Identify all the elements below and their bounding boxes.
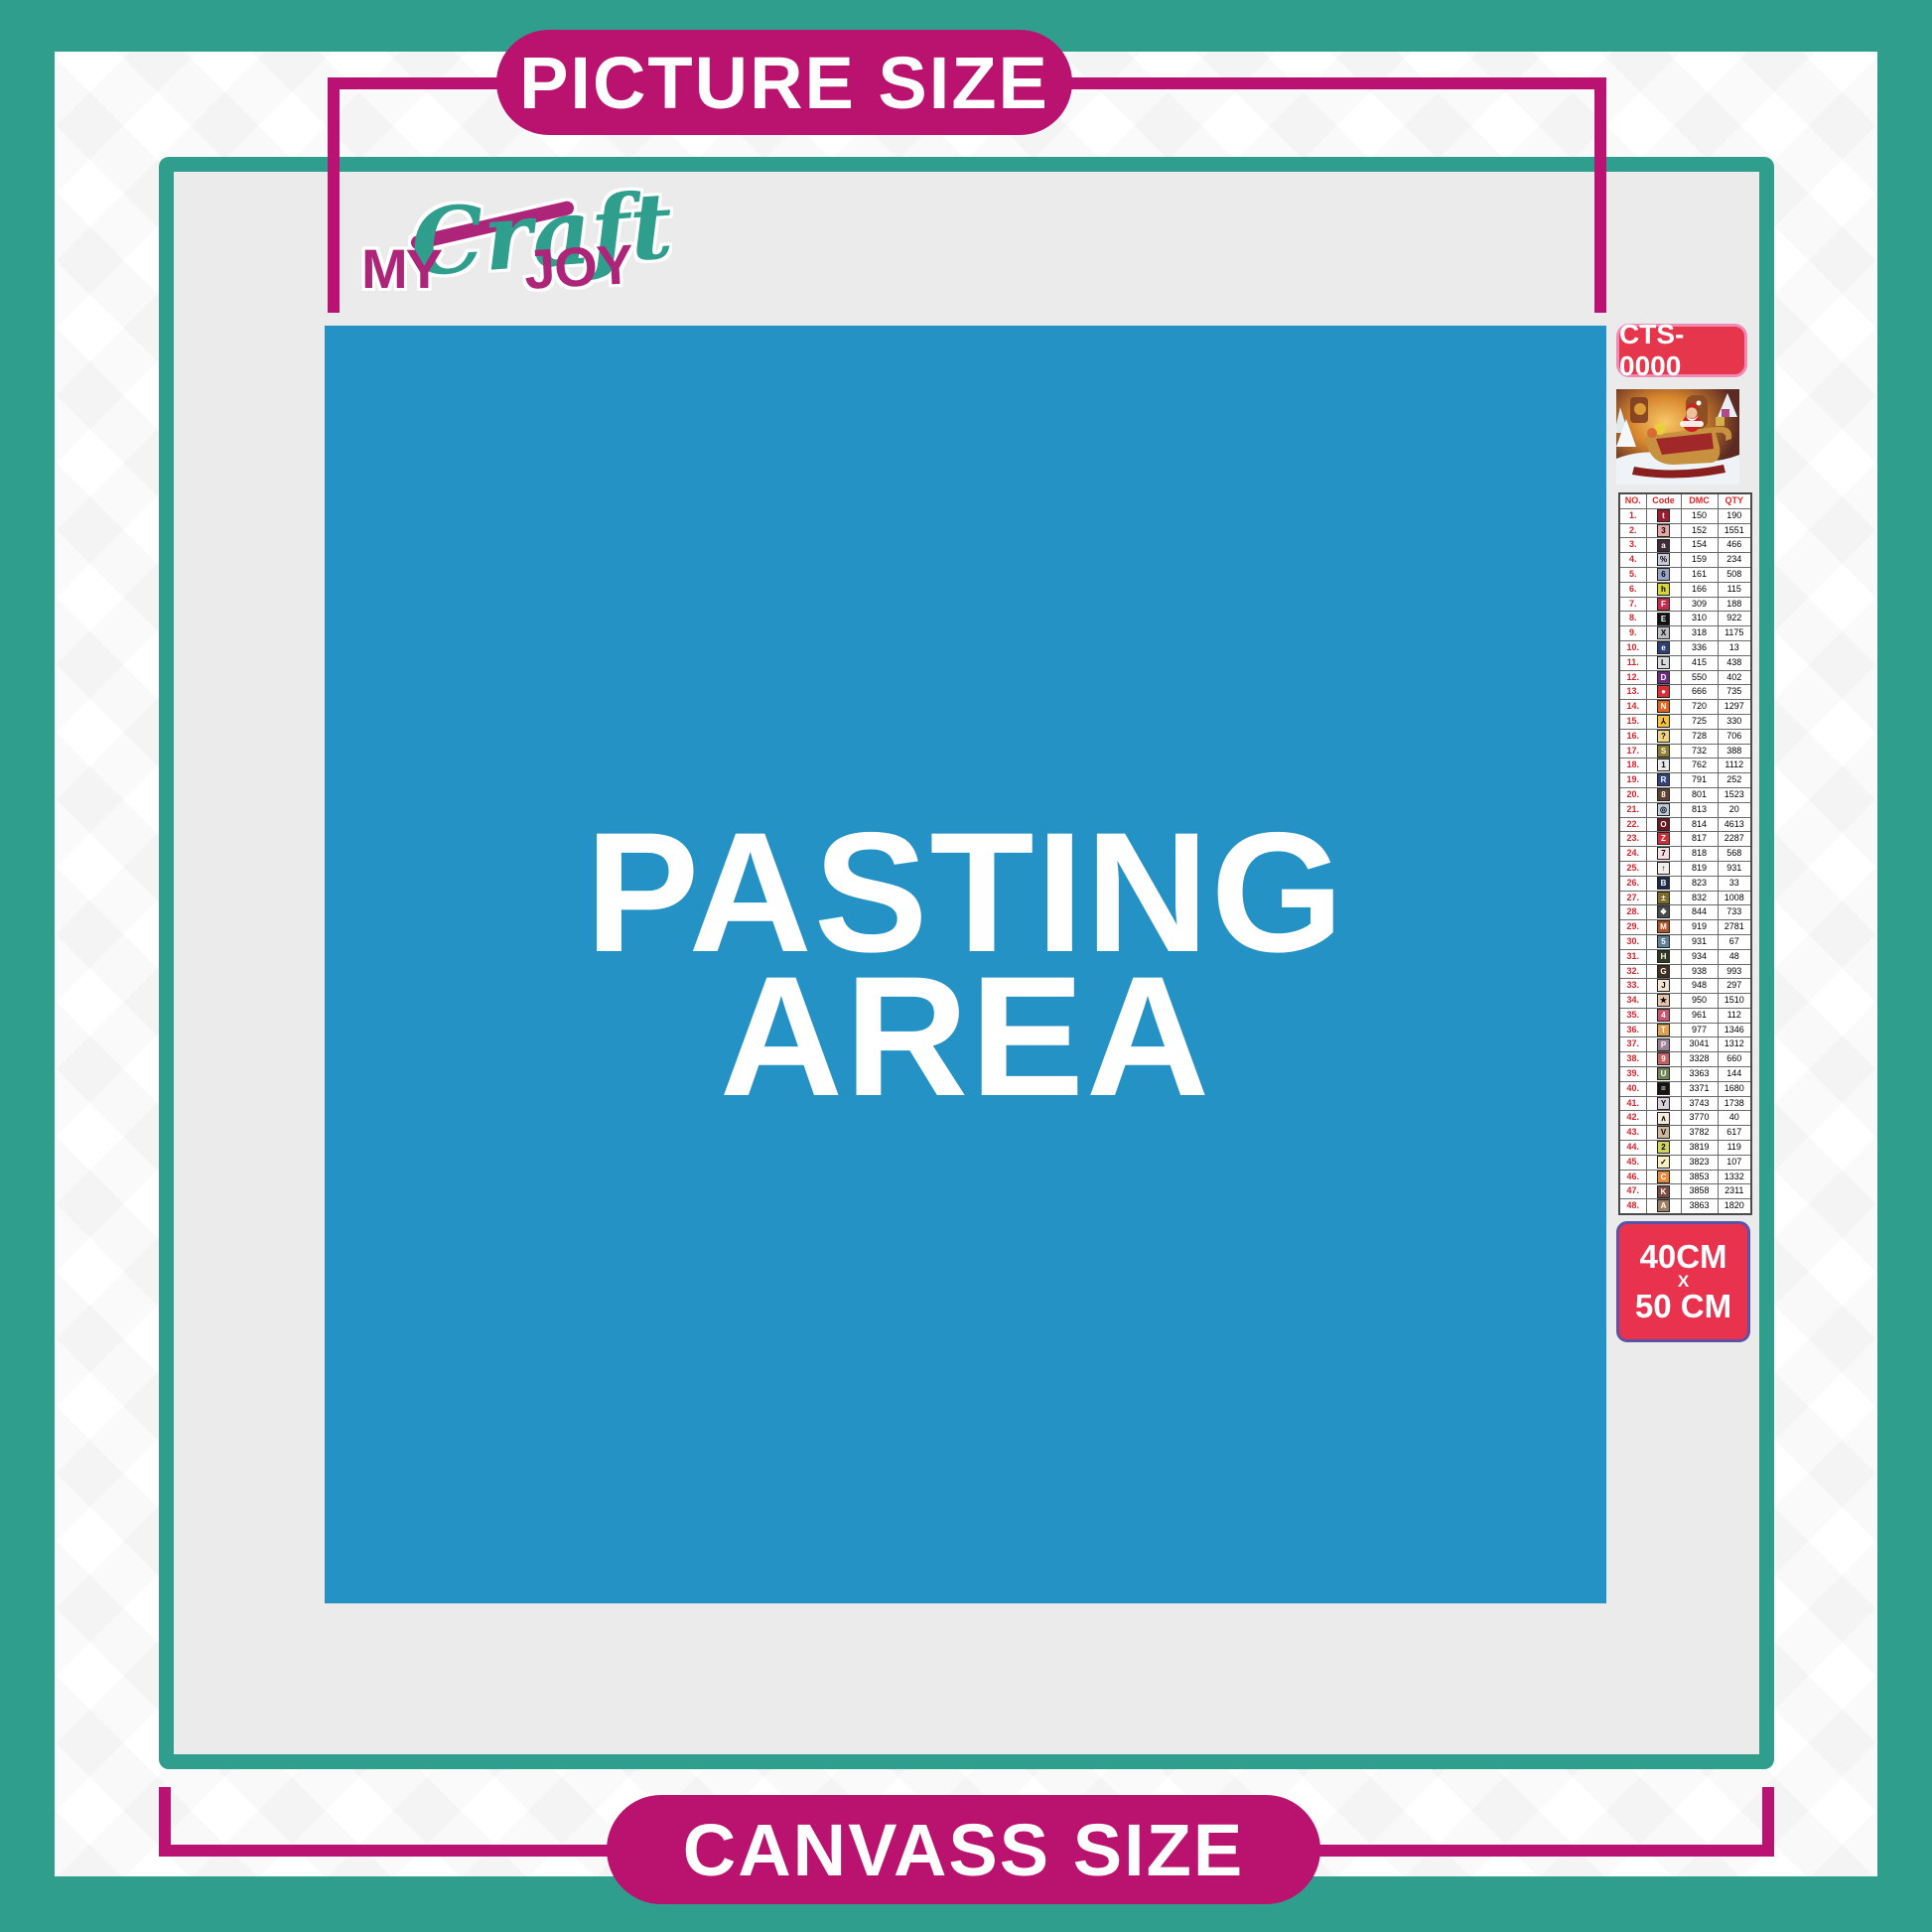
legend-dmc: 813: [1681, 802, 1718, 817]
legend-row: 44.23819119: [1619, 1141, 1751, 1156]
legend-no: 28.: [1619, 905, 1646, 920]
legend-qty: 388: [1718, 744, 1751, 759]
legend-dmc: 3853: [1681, 1170, 1718, 1184]
symbol-swatch: %: [1657, 553, 1670, 566]
legend-symbol-cell: Z: [1646, 832, 1681, 847]
legend-dmc: 948: [1681, 979, 1718, 994]
legend-dmc: 310: [1681, 612, 1718, 626]
symbol-swatch: E: [1657, 613, 1670, 625]
legend-dmc: 3770: [1681, 1111, 1718, 1126]
legend-qty: 115: [1718, 582, 1751, 597]
symbol-swatch: T: [1657, 1024, 1670, 1036]
legend-dmc: 814: [1681, 817, 1718, 832]
legend-qty: 48: [1718, 949, 1751, 964]
size-height: 50 CM: [1635, 1290, 1731, 1323]
legend-no: 20.: [1619, 787, 1646, 802]
legend-qty: 1332: [1718, 1170, 1751, 1184]
symbol-swatch: M: [1657, 920, 1670, 933]
legend-dmc: 844: [1681, 905, 1718, 920]
legend-qty: 568: [1718, 847, 1751, 862]
legend-no: 6.: [1619, 582, 1646, 597]
legend-row: 20.88011523: [1619, 787, 1751, 802]
legend-no: 48.: [1619, 1199, 1646, 1214]
legend-qty: 112: [1718, 1008, 1751, 1023]
legend-no: 22.: [1619, 817, 1646, 832]
symbol-swatch: ❖: [1657, 905, 1670, 918]
legend-qty: 1346: [1718, 1023, 1751, 1037]
legend-no: 8.: [1619, 612, 1646, 626]
legend-no: 30.: [1619, 934, 1646, 949]
legend-row: 16.?728706: [1619, 729, 1751, 744]
legend-row: 41.Y37431738: [1619, 1096, 1751, 1111]
legend-qty: 1680: [1718, 1081, 1751, 1096]
symbol-swatch: D: [1657, 671, 1670, 684]
legend-symbol-cell: E: [1646, 612, 1681, 626]
legend-row: 27.±8321008: [1619, 891, 1751, 905]
legend-dmc: 666: [1681, 685, 1718, 700]
legend-symbol-cell: ∧: [1646, 1111, 1681, 1126]
legend-dmc: 823: [1681, 876, 1718, 891]
symbol-swatch: A: [1657, 1199, 1670, 1212]
legend-qty: 993: [1718, 964, 1751, 979]
legend-no: 42.: [1619, 1111, 1646, 1126]
symbol-swatch: O: [1657, 818, 1670, 831]
symbol-swatch: U: [1657, 1067, 1670, 1080]
legend-dmc: 728: [1681, 729, 1718, 744]
canvass-size-banner: CANVASS SIZE: [607, 1795, 1320, 1904]
symbol-swatch: ↑: [1657, 862, 1670, 875]
symbol-swatch: ●: [1657, 685, 1670, 698]
legend-no: 35.: [1619, 1008, 1646, 1023]
legend-qty: 1551: [1718, 523, 1751, 538]
legend-dmc: 3371: [1681, 1081, 1718, 1096]
legend-no: 1.: [1619, 508, 1646, 523]
legend-qty: 922: [1718, 612, 1751, 626]
symbol-swatch: R: [1657, 773, 1670, 786]
legend-dmc: 3819: [1681, 1141, 1718, 1156]
legend-dmc: 801: [1681, 787, 1718, 802]
symbol-swatch: e: [1657, 641, 1670, 654]
legend-no: 12.: [1619, 670, 1646, 685]
santa-sleigh-thumbnail: [1616, 389, 1739, 484]
legend-symbol-cell: D: [1646, 670, 1681, 685]
legend-row: 14.N7201297: [1619, 700, 1751, 715]
legend-dmc: 3743: [1681, 1096, 1718, 1111]
legend-dmc: 817: [1681, 832, 1718, 847]
symbol-swatch: 1: [1657, 759, 1670, 771]
symbol-swatch: ◎: [1657, 803, 1670, 816]
legend-row: 40.=33711680: [1619, 1081, 1751, 1096]
legend-no: 32.: [1619, 964, 1646, 979]
legend-row: 32.G938993: [1619, 964, 1751, 979]
legend-symbol-cell: ⅄: [1646, 714, 1681, 729]
symbol-swatch: 3: [1657, 524, 1670, 537]
symbol-swatch: P: [1657, 1038, 1670, 1051]
legend-qty: 188: [1718, 597, 1751, 612]
legend-dmc: 977: [1681, 1023, 1718, 1037]
symbol-swatch: h: [1657, 583, 1670, 596]
legend-qty: 119: [1718, 1141, 1751, 1156]
legend-row: 29.M9192781: [1619, 920, 1751, 935]
legend-row: 45.✓3823107: [1619, 1155, 1751, 1170]
legend-row: 28.❖844733: [1619, 905, 1751, 920]
symbol-swatch: Z: [1657, 832, 1670, 845]
pasting-area-line2: AREA: [720, 965, 1211, 1108]
legend-no: 13.: [1619, 685, 1646, 700]
legend-row: 15.⅄725330: [1619, 714, 1751, 729]
legend-qty: 1112: [1718, 759, 1751, 773]
legend-row: 34.★9501510: [1619, 994, 1751, 1009]
legend-row: 24.7818568: [1619, 847, 1751, 862]
legend-no: 19.: [1619, 773, 1646, 788]
legend-qty: 20: [1718, 802, 1751, 817]
picture-size-label: PICTURE SIZE: [519, 41, 1049, 125]
legend-symbol-cell: e: [1646, 640, 1681, 655]
legend-row: 30.593167: [1619, 934, 1751, 949]
legend-symbol-cell: =: [1646, 1081, 1681, 1096]
legend-header-dmc: DMC: [1681, 493, 1718, 508]
size-badge: 40CM X 50 CM: [1616, 1221, 1750, 1342]
legend-row: 1.t150190: [1619, 508, 1751, 523]
legend-dmc: 3782: [1681, 1126, 1718, 1141]
legend-symbol-cell: ↑: [1646, 861, 1681, 876]
legend-no: 16.: [1619, 729, 1646, 744]
size-width: 40CM: [1639, 1240, 1726, 1274]
legend-no: 10.: [1619, 640, 1646, 655]
legend-row: 18.17621112: [1619, 759, 1751, 773]
legend-qty: 2781: [1718, 920, 1751, 935]
legend-no: 23.: [1619, 832, 1646, 847]
legend-symbol-cell: S: [1646, 744, 1681, 759]
legend-symbol-cell: U: [1646, 1067, 1681, 1082]
symbol-swatch: 7: [1657, 847, 1670, 860]
symbol-swatch: B: [1657, 877, 1670, 890]
legend-row: 21.◎81320: [1619, 802, 1751, 817]
legend-row: 17.S732388: [1619, 744, 1751, 759]
symbol-swatch: =: [1657, 1082, 1670, 1095]
legend-symbol-cell: a: [1646, 538, 1681, 553]
legend-qty: 402: [1718, 670, 1751, 685]
legend-symbol-cell: B: [1646, 876, 1681, 891]
legend-row: 6.h166115: [1619, 582, 1751, 597]
legend-no: 3.: [1619, 538, 1646, 553]
legend-row: 8.E310922: [1619, 612, 1751, 626]
legend-qty: 2287: [1718, 832, 1751, 847]
legend-symbol-cell: 8: [1646, 787, 1681, 802]
legend-qty: 735: [1718, 685, 1751, 700]
legend-row: 11.L415438: [1619, 655, 1751, 670]
legend-header-qty: QTY: [1718, 493, 1751, 508]
legend-row: 36.T9771346: [1619, 1023, 1751, 1037]
legend-header-no: NO.: [1619, 493, 1646, 508]
symbol-swatch: G: [1657, 965, 1670, 978]
legend-dmc: 309: [1681, 597, 1718, 612]
legend-qty: 144: [1718, 1067, 1751, 1082]
legend-no: 36.: [1619, 1023, 1646, 1037]
legend-no: 15.: [1619, 714, 1646, 729]
legend-no: 43.: [1619, 1126, 1646, 1141]
legend-dmc: 415: [1681, 655, 1718, 670]
legend-symbol-cell: 2: [1646, 1141, 1681, 1156]
legend-qty: 660: [1718, 1052, 1751, 1067]
legend-dmc: 154: [1681, 538, 1718, 553]
legend-symbol-cell: N: [1646, 700, 1681, 715]
legend-no: 7.: [1619, 597, 1646, 612]
legend-no: 2.: [1619, 523, 1646, 538]
legend-header-code: Code: [1646, 493, 1681, 508]
legend-qty: 234: [1718, 553, 1751, 568]
legend-symbol-cell: J: [1646, 979, 1681, 994]
legend-dmc: 919: [1681, 920, 1718, 935]
legend-qty: 67: [1718, 934, 1751, 949]
legend-qty: 1312: [1718, 1037, 1751, 1052]
legend-symbol-cell: F: [1646, 597, 1681, 612]
legend-dmc: 762: [1681, 759, 1718, 773]
symbol-swatch: 6: [1657, 568, 1670, 581]
legend-dmc: 791: [1681, 773, 1718, 788]
sku-badge: CTS-0000: [1616, 324, 1747, 377]
legend-no: 11.: [1619, 655, 1646, 670]
legend-no: 44.: [1619, 1141, 1646, 1156]
legend-dmc: 550: [1681, 670, 1718, 685]
canvass-size-label: CANVASS SIZE: [683, 1808, 1244, 1892]
legend-no: 26.: [1619, 876, 1646, 891]
symbol-swatch: 2: [1657, 1141, 1670, 1154]
legend-row: 7.F309188: [1619, 597, 1751, 612]
picture-size-banner: PICTURE SIZE: [496, 30, 1072, 135]
legend-symbol-cell: ●: [1646, 685, 1681, 700]
legend-qty: 1523: [1718, 787, 1751, 802]
pasting-area: PASTING AREA: [325, 326, 1606, 1603]
legend-row: 31.H93448: [1619, 949, 1751, 964]
legend-dmc: 819: [1681, 861, 1718, 876]
legend-no: 38.: [1619, 1052, 1646, 1067]
symbol-swatch: 5: [1657, 935, 1670, 948]
legend-dmc: 732: [1681, 744, 1718, 759]
legend-dmc: 950: [1681, 994, 1718, 1009]
legend-no: 37.: [1619, 1037, 1646, 1052]
legend-no: 46.: [1619, 1170, 1646, 1184]
symbol-swatch: ±: [1657, 892, 1670, 904]
brand-logo: Craft MY JOY: [347, 179, 616, 310]
symbol-swatch: H: [1657, 950, 1670, 963]
legend-dmc: 961: [1681, 1008, 1718, 1023]
legend-no: 40.: [1619, 1081, 1646, 1096]
legend-row: 10.e33613: [1619, 640, 1751, 655]
symbol-swatch: X: [1657, 626, 1670, 639]
legend-qty: 13: [1718, 640, 1751, 655]
legend-symbol-cell: G: [1646, 964, 1681, 979]
legend-row: 48.A38631820: [1619, 1199, 1751, 1214]
legend-no: 45.: [1619, 1155, 1646, 1170]
legend-no: 4.: [1619, 553, 1646, 568]
legend-dmc: 3823: [1681, 1155, 1718, 1170]
legend-no: 47.: [1619, 1184, 1646, 1199]
legend-qty: 252: [1718, 773, 1751, 788]
legend-dmc: 150: [1681, 508, 1718, 523]
legend-qty: 1738: [1718, 1096, 1751, 1111]
legend-no: 34.: [1619, 994, 1646, 1009]
legend-dmc: 832: [1681, 891, 1718, 905]
legend-qty: 4613: [1718, 817, 1751, 832]
legend-symbol-cell: 7: [1646, 847, 1681, 862]
legend-symbol-cell: 1: [1646, 759, 1681, 773]
legend-symbol-cell: M: [1646, 920, 1681, 935]
legend-no: 33.: [1619, 979, 1646, 994]
legend-row: 9.X3181175: [1619, 626, 1751, 641]
legend-symbol-cell: L: [1646, 655, 1681, 670]
legend-dmc: 3328: [1681, 1052, 1718, 1067]
legend-qty: 297: [1718, 979, 1751, 994]
legend-dmc: 161: [1681, 567, 1718, 582]
legend-dmc: 159: [1681, 553, 1718, 568]
legend-symbol-cell: h: [1646, 582, 1681, 597]
legend-row: 26.B82333: [1619, 876, 1751, 891]
legend-row: 47.K38582311: [1619, 1184, 1751, 1199]
legend-symbol-cell: T: [1646, 1023, 1681, 1037]
symbol-swatch: a: [1657, 539, 1670, 552]
legend-symbol-cell: R: [1646, 773, 1681, 788]
symbol-swatch: t: [1657, 509, 1670, 522]
legend-no: 39.: [1619, 1067, 1646, 1082]
symbol-swatch: ∧: [1657, 1112, 1670, 1125]
legend-symbol-cell: P: [1646, 1037, 1681, 1052]
legend-symbol-cell: X: [1646, 626, 1681, 641]
legend-qty: 107: [1718, 1155, 1751, 1170]
legend-dmc: 931: [1681, 934, 1718, 949]
legend-row: 3.a154466: [1619, 538, 1751, 553]
legend-symbol-cell: K: [1646, 1184, 1681, 1199]
symbol-swatch: F: [1657, 598, 1670, 611]
legend-row: 37.P30411312: [1619, 1037, 1751, 1052]
symbol-swatch: C: [1657, 1171, 1670, 1183]
legend-row: 39.U3363144: [1619, 1067, 1751, 1082]
legend-dmc: 934: [1681, 949, 1718, 964]
symbol-swatch: N: [1657, 700, 1670, 713]
symbol-swatch: ✓: [1657, 1156, 1670, 1169]
legend-no: 5.: [1619, 567, 1646, 582]
legend-no: 9.: [1619, 626, 1646, 641]
legend-no: 41.: [1619, 1096, 1646, 1111]
legend-symbol-cell: 4: [1646, 1008, 1681, 1023]
legend-row: 46.C38531332: [1619, 1170, 1751, 1184]
legend-qty: 1820: [1718, 1199, 1751, 1214]
legend-symbol-cell: A: [1646, 1199, 1681, 1214]
santa-sleigh-illustration: [1616, 389, 1739, 484]
legend-symbol-cell: 3: [1646, 523, 1681, 538]
legend-dmc: 3363: [1681, 1067, 1718, 1082]
legend-dmc: 720: [1681, 700, 1718, 715]
symbol-swatch: L: [1657, 656, 1670, 669]
legend-dmc: 152: [1681, 523, 1718, 538]
legend-qty: 466: [1718, 538, 1751, 553]
legend-dmc: 166: [1681, 582, 1718, 597]
legend-no: 14.: [1619, 700, 1646, 715]
legend-symbol-cell: ✓: [1646, 1155, 1681, 1170]
legend-symbol-cell: O: [1646, 817, 1681, 832]
legend-symbol-cell: 9: [1646, 1052, 1681, 1067]
legend-row: 35.4961112: [1619, 1008, 1751, 1023]
legend-dmc: 725: [1681, 714, 1718, 729]
legend-symbol-cell: ❖: [1646, 905, 1681, 920]
legend-row: 12.D550402: [1619, 670, 1751, 685]
legend-table-body: 1.t1501902.315215513.a1544664.%1592345.6…: [1619, 508, 1751, 1214]
legend-qty: 438: [1718, 655, 1751, 670]
legend-no: 24.: [1619, 847, 1646, 862]
legend-symbol-cell: C: [1646, 1170, 1681, 1184]
symbol-swatch: 8: [1657, 788, 1670, 801]
legend-qty: 1175: [1718, 626, 1751, 641]
symbol-swatch: K: [1657, 1185, 1670, 1198]
legend-dmc: 3858: [1681, 1184, 1718, 1199]
legend-row: 33.J948297: [1619, 979, 1751, 994]
legend-no: 17.: [1619, 744, 1646, 759]
legend-symbol-cell: Y: [1646, 1096, 1681, 1111]
legend-row: 2.31521551: [1619, 523, 1751, 538]
legend-dmc: 938: [1681, 964, 1718, 979]
legend-symbol-cell: 5: [1646, 934, 1681, 949]
legend-qty: 931: [1718, 861, 1751, 876]
legend-row: 5.6161508: [1619, 567, 1751, 582]
legend-dmc: 318: [1681, 626, 1718, 641]
legend-qty: 190: [1718, 508, 1751, 523]
symbol-swatch: Y: [1657, 1097, 1670, 1110]
legend-symbol-cell: V: [1646, 1126, 1681, 1141]
legend-no: 31.: [1619, 949, 1646, 964]
legend-qty: 508: [1718, 567, 1751, 582]
legend-row: 22.O8144613: [1619, 817, 1751, 832]
legend-row: 4.%159234: [1619, 553, 1751, 568]
symbol-swatch: V: [1657, 1126, 1670, 1139]
legend-row: 25.↑819931: [1619, 861, 1751, 876]
symbol-swatch: 9: [1657, 1052, 1670, 1065]
legend-row: 42.∧377040: [1619, 1111, 1751, 1126]
symbol-swatch: J: [1657, 979, 1670, 992]
symbol-swatch: S: [1657, 745, 1670, 758]
legend-no: 27.: [1619, 891, 1646, 905]
logo-word-joy: JOY: [522, 231, 633, 302]
legend-symbol-cell: ?: [1646, 729, 1681, 744]
legend-dmc: 818: [1681, 847, 1718, 862]
legend-no: 29.: [1619, 920, 1646, 935]
legend-qty: 733: [1718, 905, 1751, 920]
legend-qty: 2311: [1718, 1184, 1751, 1199]
legend-row: 38.93328660: [1619, 1052, 1751, 1067]
legend-qty: 1297: [1718, 700, 1751, 715]
legend-dmc: 336: [1681, 640, 1718, 655]
legend-qty: 330: [1718, 714, 1751, 729]
legend-symbol-cell: %: [1646, 553, 1681, 568]
legend-qty: 33: [1718, 876, 1751, 891]
legend-no: 21.: [1619, 802, 1646, 817]
legend-symbol-cell: 6: [1646, 567, 1681, 582]
legend-symbol-cell: ★: [1646, 994, 1681, 1009]
legend-row: 23.Z8172287: [1619, 832, 1751, 847]
legend-qty: 40: [1718, 1111, 1751, 1126]
legend-no: 18.: [1619, 759, 1646, 773]
legend-dmc: 3863: [1681, 1199, 1718, 1214]
legend-qty: 1008: [1718, 891, 1751, 905]
symbol-swatch: ⅄: [1657, 715, 1670, 728]
legend-header-row: NO. Code DMC QTY: [1619, 493, 1751, 508]
legend-dmc: 3041: [1681, 1037, 1718, 1052]
legend-row: 19.R791252: [1619, 773, 1751, 788]
symbol-swatch: 4: [1657, 1009, 1670, 1022]
legend-qty: 617: [1718, 1126, 1751, 1141]
logo-word-my: MY: [361, 236, 441, 301]
legend-symbol-cell: H: [1646, 949, 1681, 964]
legend-symbol-cell: t: [1646, 508, 1681, 523]
